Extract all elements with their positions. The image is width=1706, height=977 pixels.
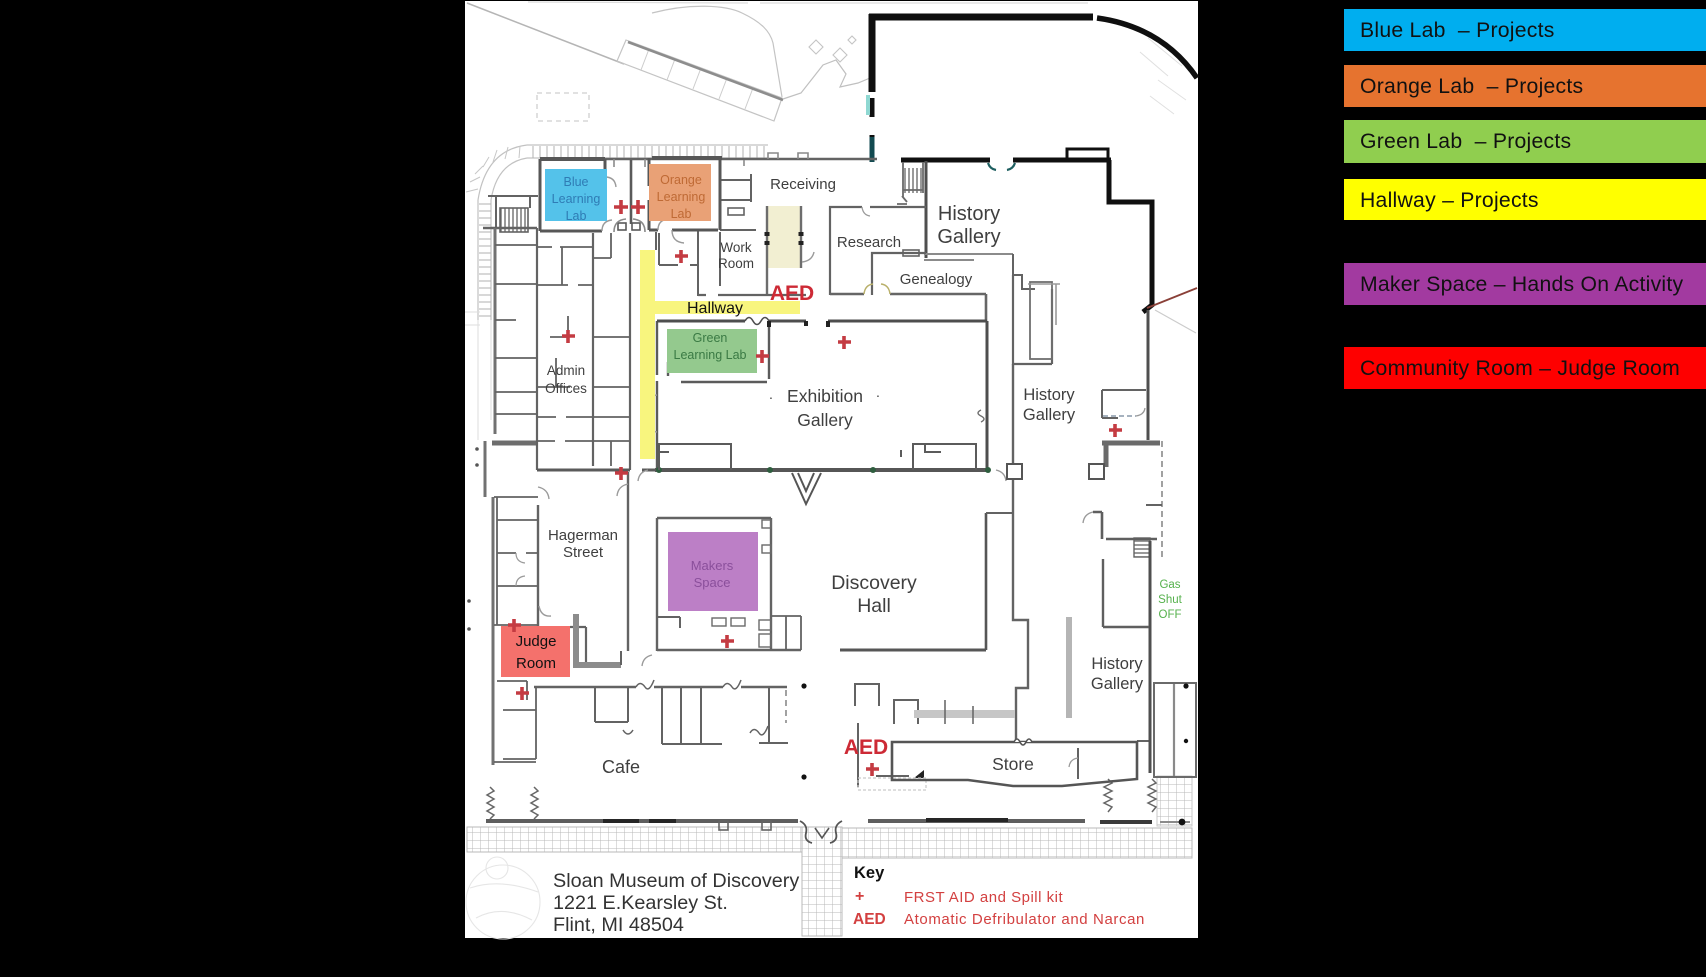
svg-text:Genealogy: Genealogy — [900, 271, 973, 288]
svg-text:Receiving: Receiving — [770, 176, 836, 193]
svg-text:AED: AED — [853, 911, 886, 928]
svg-text:Discovery: Discovery — [831, 572, 917, 594]
svg-text:Orange: Orange — [660, 173, 702, 187]
svg-text:Makers: Makers — [691, 558, 734, 573]
svg-text:Space: Space — [694, 575, 731, 590]
svg-text:Gas: Gas — [1159, 579, 1180, 591]
svg-text:Lab: Lab — [671, 207, 692, 221]
svg-text:Cafe: Cafe — [602, 757, 640, 777]
svg-text:History: History — [938, 203, 1000, 225]
svg-text:AED: AED — [770, 282, 814, 305]
svg-text:Hallway: Hallway — [687, 300, 743, 317]
svg-text:Learning Lab: Learning Lab — [674, 348, 747, 362]
svg-text:Room: Room — [516, 655, 556, 672]
svg-text:Judge: Judge — [516, 633, 557, 650]
svg-text:1221 E.Kearsley St.: 1221 E.Kearsley St. — [553, 892, 728, 914]
svg-text:Blue: Blue — [563, 175, 588, 189]
svg-text:Hagerman: Hagerman — [548, 527, 618, 544]
svg-text:Community Room – Judge Room: Community Room – Judge Room — [1360, 357, 1680, 380]
svg-text:Street: Street — [563, 544, 604, 561]
svg-text:Lab: Lab — [566, 209, 587, 223]
svg-text:Exhibition: Exhibition — [787, 386, 863, 406]
svg-text:Gallery: Gallery — [937, 226, 1000, 248]
svg-text:Sloan Museum of Discovery: Sloan Museum of Discovery — [553, 870, 799, 892]
svg-text:FRST AID and Spill kit: FRST AID and Spill kit — [904, 889, 1063, 906]
svg-text:Gallery: Gallery — [797, 410, 853, 430]
svg-text:OFF: OFF — [1159, 609, 1182, 621]
svg-text:Research: Research — [837, 234, 901, 251]
svg-text:Maker Space – Hands On Activit: Maker Space – Hands On Activity — [1360, 273, 1684, 296]
svg-text:Hall: Hall — [857, 595, 891, 617]
svg-text:Offices: Offices — [545, 381, 587, 396]
svg-text:History: History — [1091, 655, 1143, 673]
svg-text:AED: AED — [844, 736, 888, 759]
svg-text:History: History — [1023, 386, 1075, 404]
svg-text:Admin: Admin — [547, 363, 585, 378]
svg-text:Green: Green — [693, 331, 728, 345]
svg-text:+: + — [855, 888, 864, 905]
svg-text:Green Lab – Projects: Green Lab – Projects — [1360, 130, 1571, 153]
svg-text:Shut: Shut — [1158, 594, 1182, 606]
svg-text:Blue Lab – Projects: Blue Lab – Projects — [1360, 19, 1555, 42]
svg-text:Key: Key — [854, 864, 885, 882]
svg-text:Learning: Learning — [657, 190, 706, 204]
svg-text:·: · — [769, 389, 774, 405]
svg-text:Learning: Learning — [552, 192, 601, 206]
svg-text:Atomatic Defribulator and Narc: Atomatic Defribulator and Narcan — [904, 911, 1145, 928]
svg-text:Orange Lab – Projects: Orange Lab – Projects — [1360, 75, 1583, 98]
svg-text:Flint, MI 48504: Flint, MI 48504 — [553, 914, 684, 936]
svg-text:Hallway – Projects: Hallway – Projects — [1360, 189, 1539, 212]
svg-text:Room: Room — [718, 256, 754, 271]
svg-text:Gallery: Gallery — [1023, 406, 1076, 424]
svg-text:Store: Store — [992, 754, 1034, 774]
svg-text:Gallery: Gallery — [1091, 675, 1144, 693]
svg-text:·: · — [876, 387, 881, 403]
svg-text:Work: Work — [720, 240, 752, 255]
